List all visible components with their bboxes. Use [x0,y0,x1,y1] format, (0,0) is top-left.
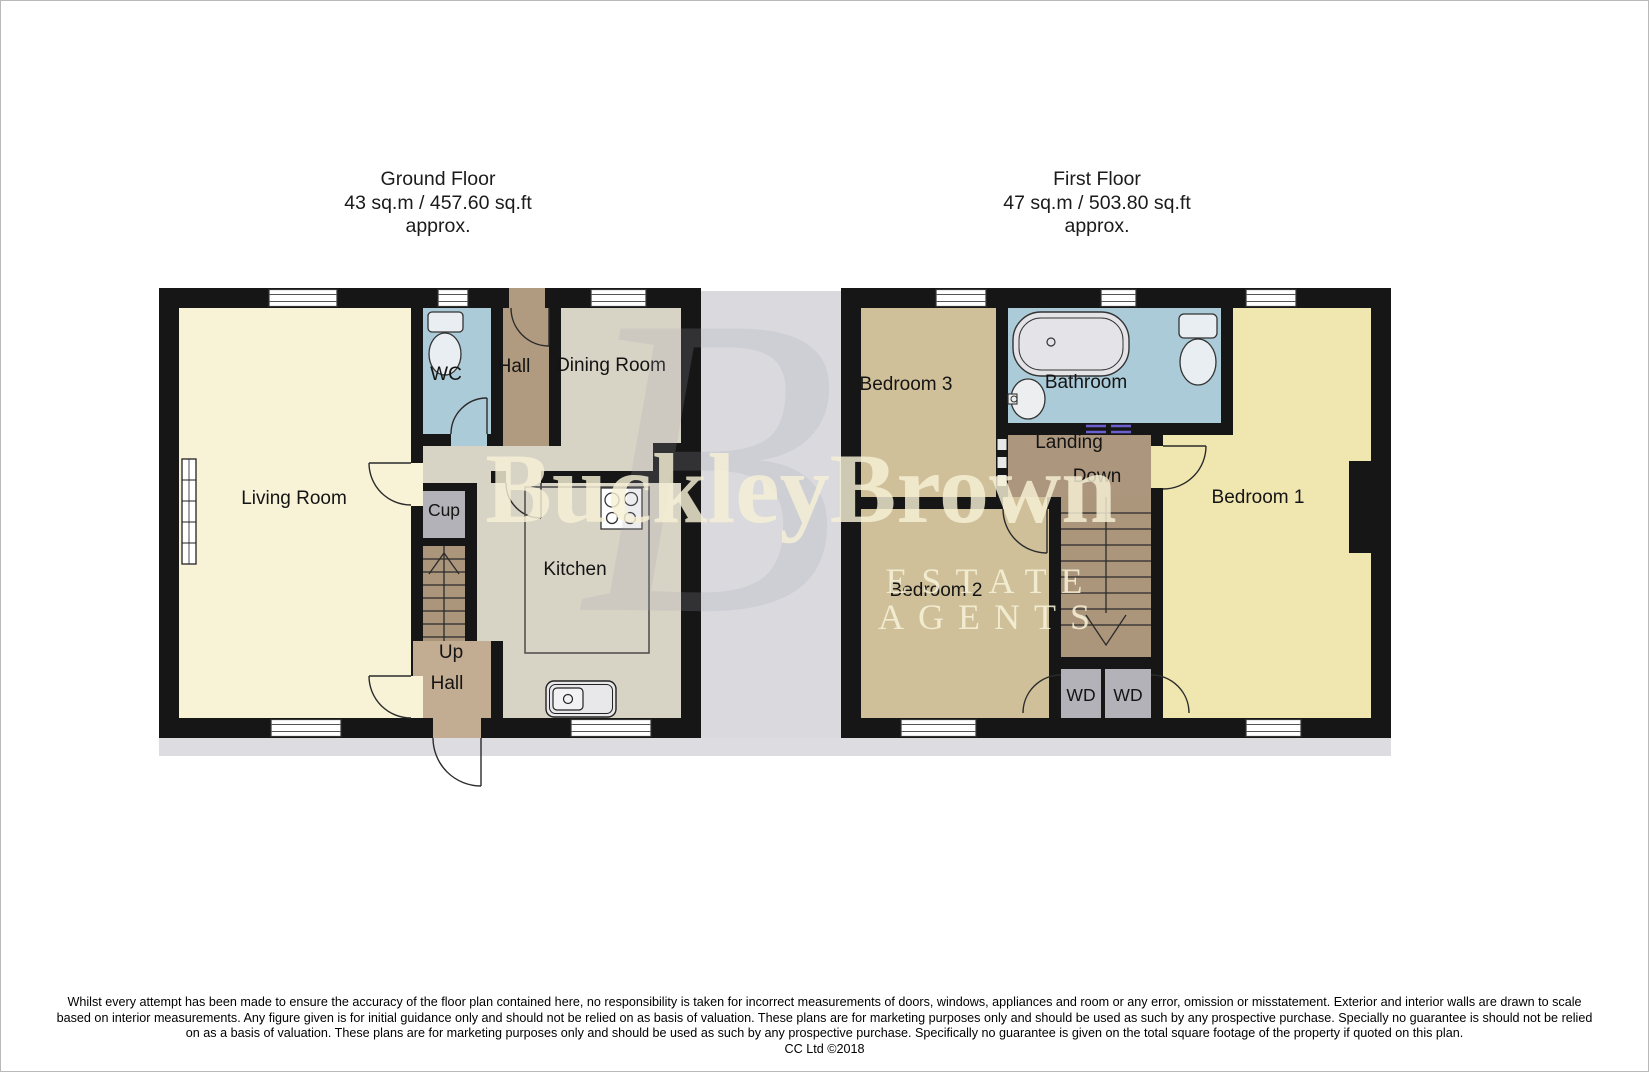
gf-wall-notch [653,443,681,471]
room-label-up: Up [439,642,463,663]
room-label-wd-right: WD [1113,685,1142,705]
door-arc [433,738,481,786]
room-label-hall-bottom: Hall [431,673,464,694]
gf-back-door-opening [433,718,481,738]
window [269,290,337,307]
room-label-wc: WC [430,364,462,385]
room-bedroom-2 [861,509,1049,718]
window [1246,720,1301,737]
room-label-down: Down [1073,466,1122,487]
disclaimer-line-2: based on interior measurements. Any figu… [1,1011,1648,1027]
window [571,720,651,737]
room-label-landing: Landing [1035,432,1103,453]
ff-chimney-breast [1349,461,1371,553]
room-label-hall-top: Hall [498,356,531,377]
window [1246,290,1296,307]
room-label-kitchen: Kitchen [543,559,606,580]
window [1101,290,1136,307]
window [591,290,646,307]
gf-hall-door-opening [506,471,541,483]
room-label-dining: Dining Room [556,355,666,376]
room-label-bedroom-3: Bedroom 3 [860,374,953,395]
gf-living-door-opening [411,463,423,506]
window [936,290,986,307]
floor-plan-svg: Living Room WC Hall Dining Room Cup Kitc… [1,1,1649,1072]
gf-wc-door-opening [451,434,487,446]
room-bedroom-1-upper [1233,308,1371,435]
ff-bedroom1-door-opening [1151,446,1163,488]
room-living-room [179,308,411,718]
room-label-wd-left: WD [1066,685,1095,705]
first-floor-plan: Bedroom 3 Bathroom Landing Down Bedroom … [841,288,1391,738]
hob-icon [601,488,642,529]
room-bedroom-3 [861,308,996,497]
disclaimer-line-4: CC Ltd ©2018 [1,1042,1648,1058]
gf-wall [491,641,503,718]
room-label-cup: Cup [428,500,460,520]
disclaimer: Whilst every attempt has been made to en… [1,995,1648,1057]
radiator-icon [182,459,196,564]
gf-wall [465,483,477,641]
gf-wall [423,538,465,546]
room-bedroom-1 [1163,435,1371,718]
floorplan-page: Ground Floor 43 sq.m / 457.60 sq.ft appr… [0,0,1649,1072]
gf-living-hall-door-opening [411,676,423,718]
gf-front-door-opening [509,288,545,308]
room-label-bedroom-2: Bedroom 2 [890,580,983,601]
ground-floor-plan: Living Room WC Hall Dining Room Cup Kitc… [159,288,701,786]
ff-bedroom2-door-opening [1003,497,1047,509]
window [271,720,341,737]
window [901,720,976,737]
bathtub-icon [1013,312,1129,376]
room-label-bedroom-1: Bedroom 1 [1212,487,1305,508]
disclaimer-line-3: on as a basis of valuation. These plans … [1,1026,1648,1042]
room-label-living-room: Living Room [241,488,347,509]
disclaimer-line-1: Whilst every attempt has been made to en… [1,995,1648,1011]
room-label-bathroom: Bathroom [1045,372,1127,393]
toilet-icon [1179,314,1217,385]
window [438,290,468,307]
sink-icon [546,681,616,717]
